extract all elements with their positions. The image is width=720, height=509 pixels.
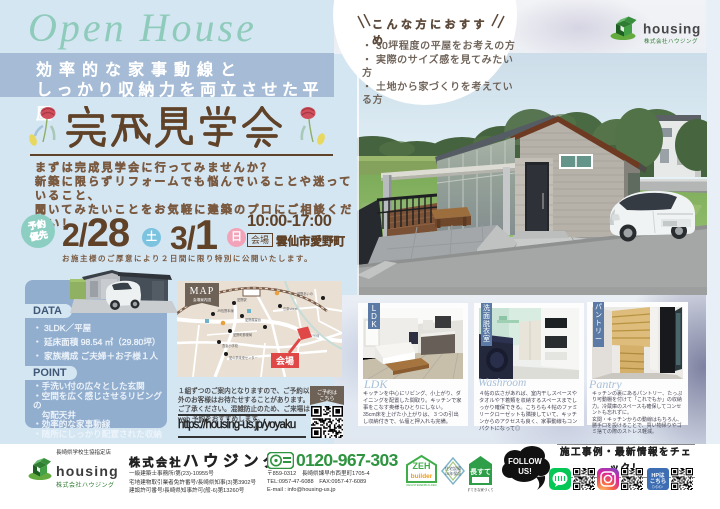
svg-text:長崎すてきな家づくりの会: 長崎すてきな家づくりの会 bbox=[468, 487, 493, 492]
svg-text:愛野展望台: 愛野展望台 bbox=[245, 317, 261, 322]
svg-text:housing: housing bbox=[643, 22, 701, 37]
svg-text:10年保証: 10年保証 bbox=[445, 470, 461, 476]
svg-text:愛野駅: 愛野駅 bbox=[237, 297, 247, 302]
svg-text:ご予約は: ご予約は bbox=[317, 389, 337, 396]
svg-text:ZEH: ZEH bbox=[413, 461, 431, 471]
svg-text:愛野町郵便局: 愛野町郵便局 bbox=[233, 332, 252, 337]
svg-text:愛野あいの: 愛野あいの bbox=[297, 291, 313, 296]
svg-text:株式会社ハウジング: 株式会社ハウジング bbox=[644, 37, 698, 44]
svg-text:JR長野本線: JR長野本線 bbox=[217, 308, 234, 313]
svg-text:会場: 会場 bbox=[276, 355, 294, 366]
svg-text:HPは: HPは bbox=[651, 472, 665, 479]
svg-text:長崎県学校生協指定店: 長崎県学校生協指定店 bbox=[56, 448, 112, 456]
svg-text:会場案内図: 会場案内図 bbox=[193, 297, 211, 302]
svg-text:長すて: 長すて bbox=[470, 467, 491, 476]
svg-text:▷▷▷: ▷▷▷ bbox=[653, 484, 664, 489]
svg-text:housing: housing bbox=[56, 463, 119, 479]
svg-text:こちら: こちら bbox=[319, 396, 334, 402]
svg-text:builder: builder bbox=[411, 473, 433, 480]
svg-text:MAP: MAP bbox=[190, 286, 215, 297]
svg-text:REGISTERED​BUILDER: REGISTERED​BUILDER bbox=[406, 483, 436, 487]
svg-text:US!: US! bbox=[518, 467, 531, 476]
svg-text:吾妻小学校: 吾妻小学校 bbox=[222, 343, 239, 348]
svg-text:FOLLOW: FOLLOW bbox=[508, 457, 542, 466]
svg-text:愛の夢未来センター: 愛の夢未来センター bbox=[229, 355, 258, 360]
svg-text:株式会社ハウジング: 株式会社ハウジング bbox=[56, 481, 115, 489]
svg-text:島原street: 島原street bbox=[283, 306, 297, 311]
